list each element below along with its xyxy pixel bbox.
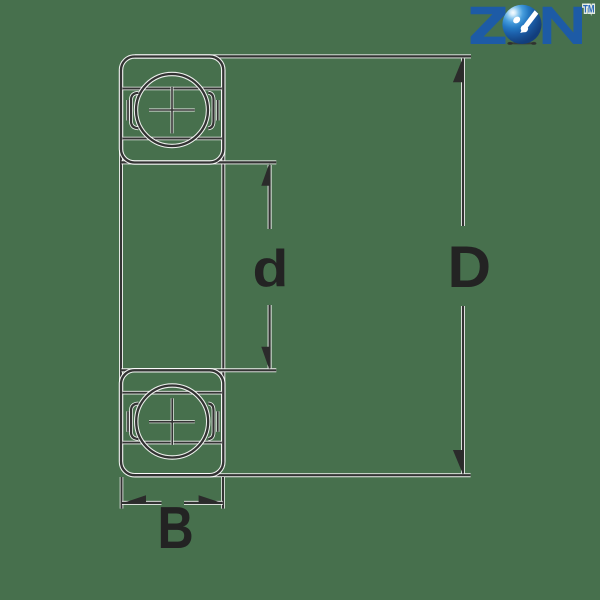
- svg-text:D: D: [448, 234, 492, 300]
- svg-text:TM: TM: [583, 3, 595, 16]
- svg-text:d: d: [253, 239, 289, 297]
- svg-text:B: B: [158, 494, 194, 561]
